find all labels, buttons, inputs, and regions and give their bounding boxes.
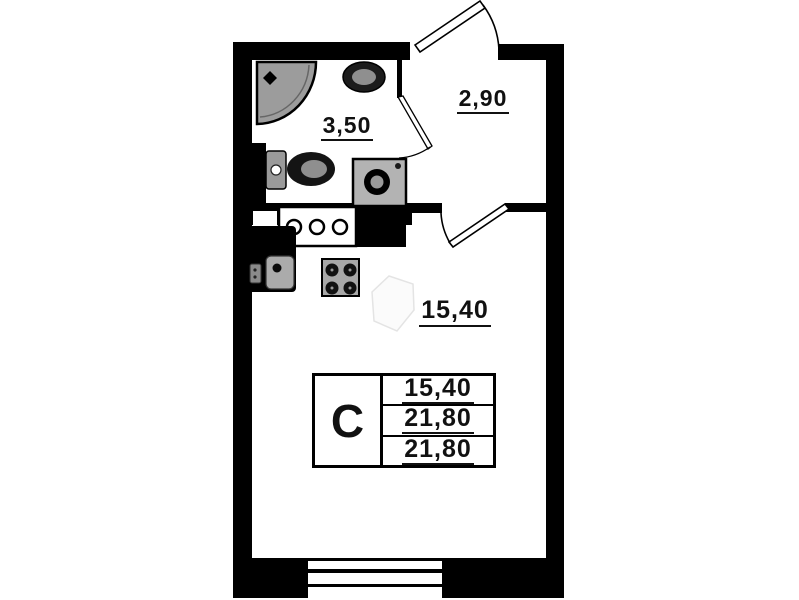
kitchen-unit bbox=[245, 207, 359, 296]
bathroom-door-swing-arc bbox=[399, 147, 430, 158]
bathroom-area-value: 3,50 bbox=[321, 112, 374, 141]
sink-drain-dot bbox=[253, 268, 256, 271]
counter-knob bbox=[333, 220, 347, 234]
shower bbox=[257, 62, 316, 124]
wall-plumbing-shaft bbox=[252, 143, 266, 205]
burner-mark bbox=[349, 287, 352, 290]
interior-door-swing-arc bbox=[441, 213, 450, 243]
entrance-door-swing-arc bbox=[483, 5, 499, 50]
interior-door-leaf bbox=[449, 204, 509, 247]
window-frame-line bbox=[308, 569, 442, 573]
apartment-type-label: С bbox=[331, 394, 364, 448]
kitchen-sink bbox=[245, 226, 296, 292]
washing-machine-knob bbox=[395, 163, 401, 169]
toilet-seat bbox=[301, 160, 327, 178]
wall-right bbox=[546, 44, 564, 598]
burner-mark bbox=[349, 269, 352, 272]
floor-plan: 3,50 2,90 15,40 С 15,40 21,80 21,80 bbox=[0, 0, 799, 600]
bathroom-door-leaf bbox=[398, 96, 432, 149]
living-room-area-value: 15,40 bbox=[419, 296, 491, 327]
toilet-flush-button bbox=[271, 165, 281, 175]
sink-drainboard bbox=[250, 264, 261, 283]
overall-area-value: 21,80 bbox=[402, 437, 474, 465]
hallway-area-value: 2,90 bbox=[457, 85, 510, 114]
sink-drain-dot bbox=[253, 275, 256, 278]
entrance-door-leaf bbox=[415, 1, 485, 52]
kitchen-stove bbox=[322, 259, 359, 296]
window-frame-line bbox=[308, 558, 442, 561]
hallway-area-label: 2,90 bbox=[448, 85, 518, 112]
counter-knob bbox=[310, 220, 324, 234]
toilet bbox=[266, 151, 335, 189]
wall-hallway-bottom bbox=[408, 203, 442, 213]
wall-left bbox=[233, 42, 252, 598]
wall-bottom-right bbox=[442, 558, 564, 598]
living-room-area-label: 15,40 bbox=[410, 296, 500, 325]
sink-faucet bbox=[273, 264, 282, 273]
living-area-cell: 15,40 bbox=[383, 376, 493, 404]
washing-machine bbox=[353, 159, 406, 206]
shower-tray bbox=[257, 62, 316, 124]
window bbox=[308, 558, 442, 598]
wall-bottom-left bbox=[233, 558, 308, 598]
sink-basin bbox=[266, 256, 294, 289]
window-frame-line bbox=[308, 584, 442, 587]
entrance-door bbox=[415, 1, 499, 52]
apartment-type-cell: С bbox=[315, 376, 383, 465]
washing-machine-door-glass bbox=[371, 176, 384, 189]
wall-bathroom-right-thin bbox=[397, 58, 402, 98]
bathroom-area-label: 3,50 bbox=[314, 112, 380, 139]
bathroom-door bbox=[398, 96, 432, 158]
burner-mark bbox=[331, 269, 334, 272]
watermark-artifact bbox=[372, 276, 414, 331]
total-area-cell: 21,80 bbox=[383, 404, 493, 434]
total-area-value: 21,80 bbox=[402, 406, 474, 434]
interior-door bbox=[441, 204, 509, 247]
living-area-value: 15,40 bbox=[402, 376, 474, 404]
floor-plan-drawing bbox=[0, 0, 799, 600]
window-opening bbox=[308, 558, 442, 598]
overall-area-cell: 21,80 bbox=[383, 435, 493, 465]
wall-right-of-interior-door bbox=[505, 203, 546, 212]
washbasin-bowl bbox=[352, 69, 376, 85]
washbasin bbox=[343, 62, 385, 92]
burner-mark bbox=[331, 287, 334, 290]
wall-kitchen-extension bbox=[356, 225, 406, 247]
wall-top-left bbox=[233, 42, 410, 60]
apartment-summary-table: С 15,40 21,80 21,80 bbox=[312, 373, 496, 468]
